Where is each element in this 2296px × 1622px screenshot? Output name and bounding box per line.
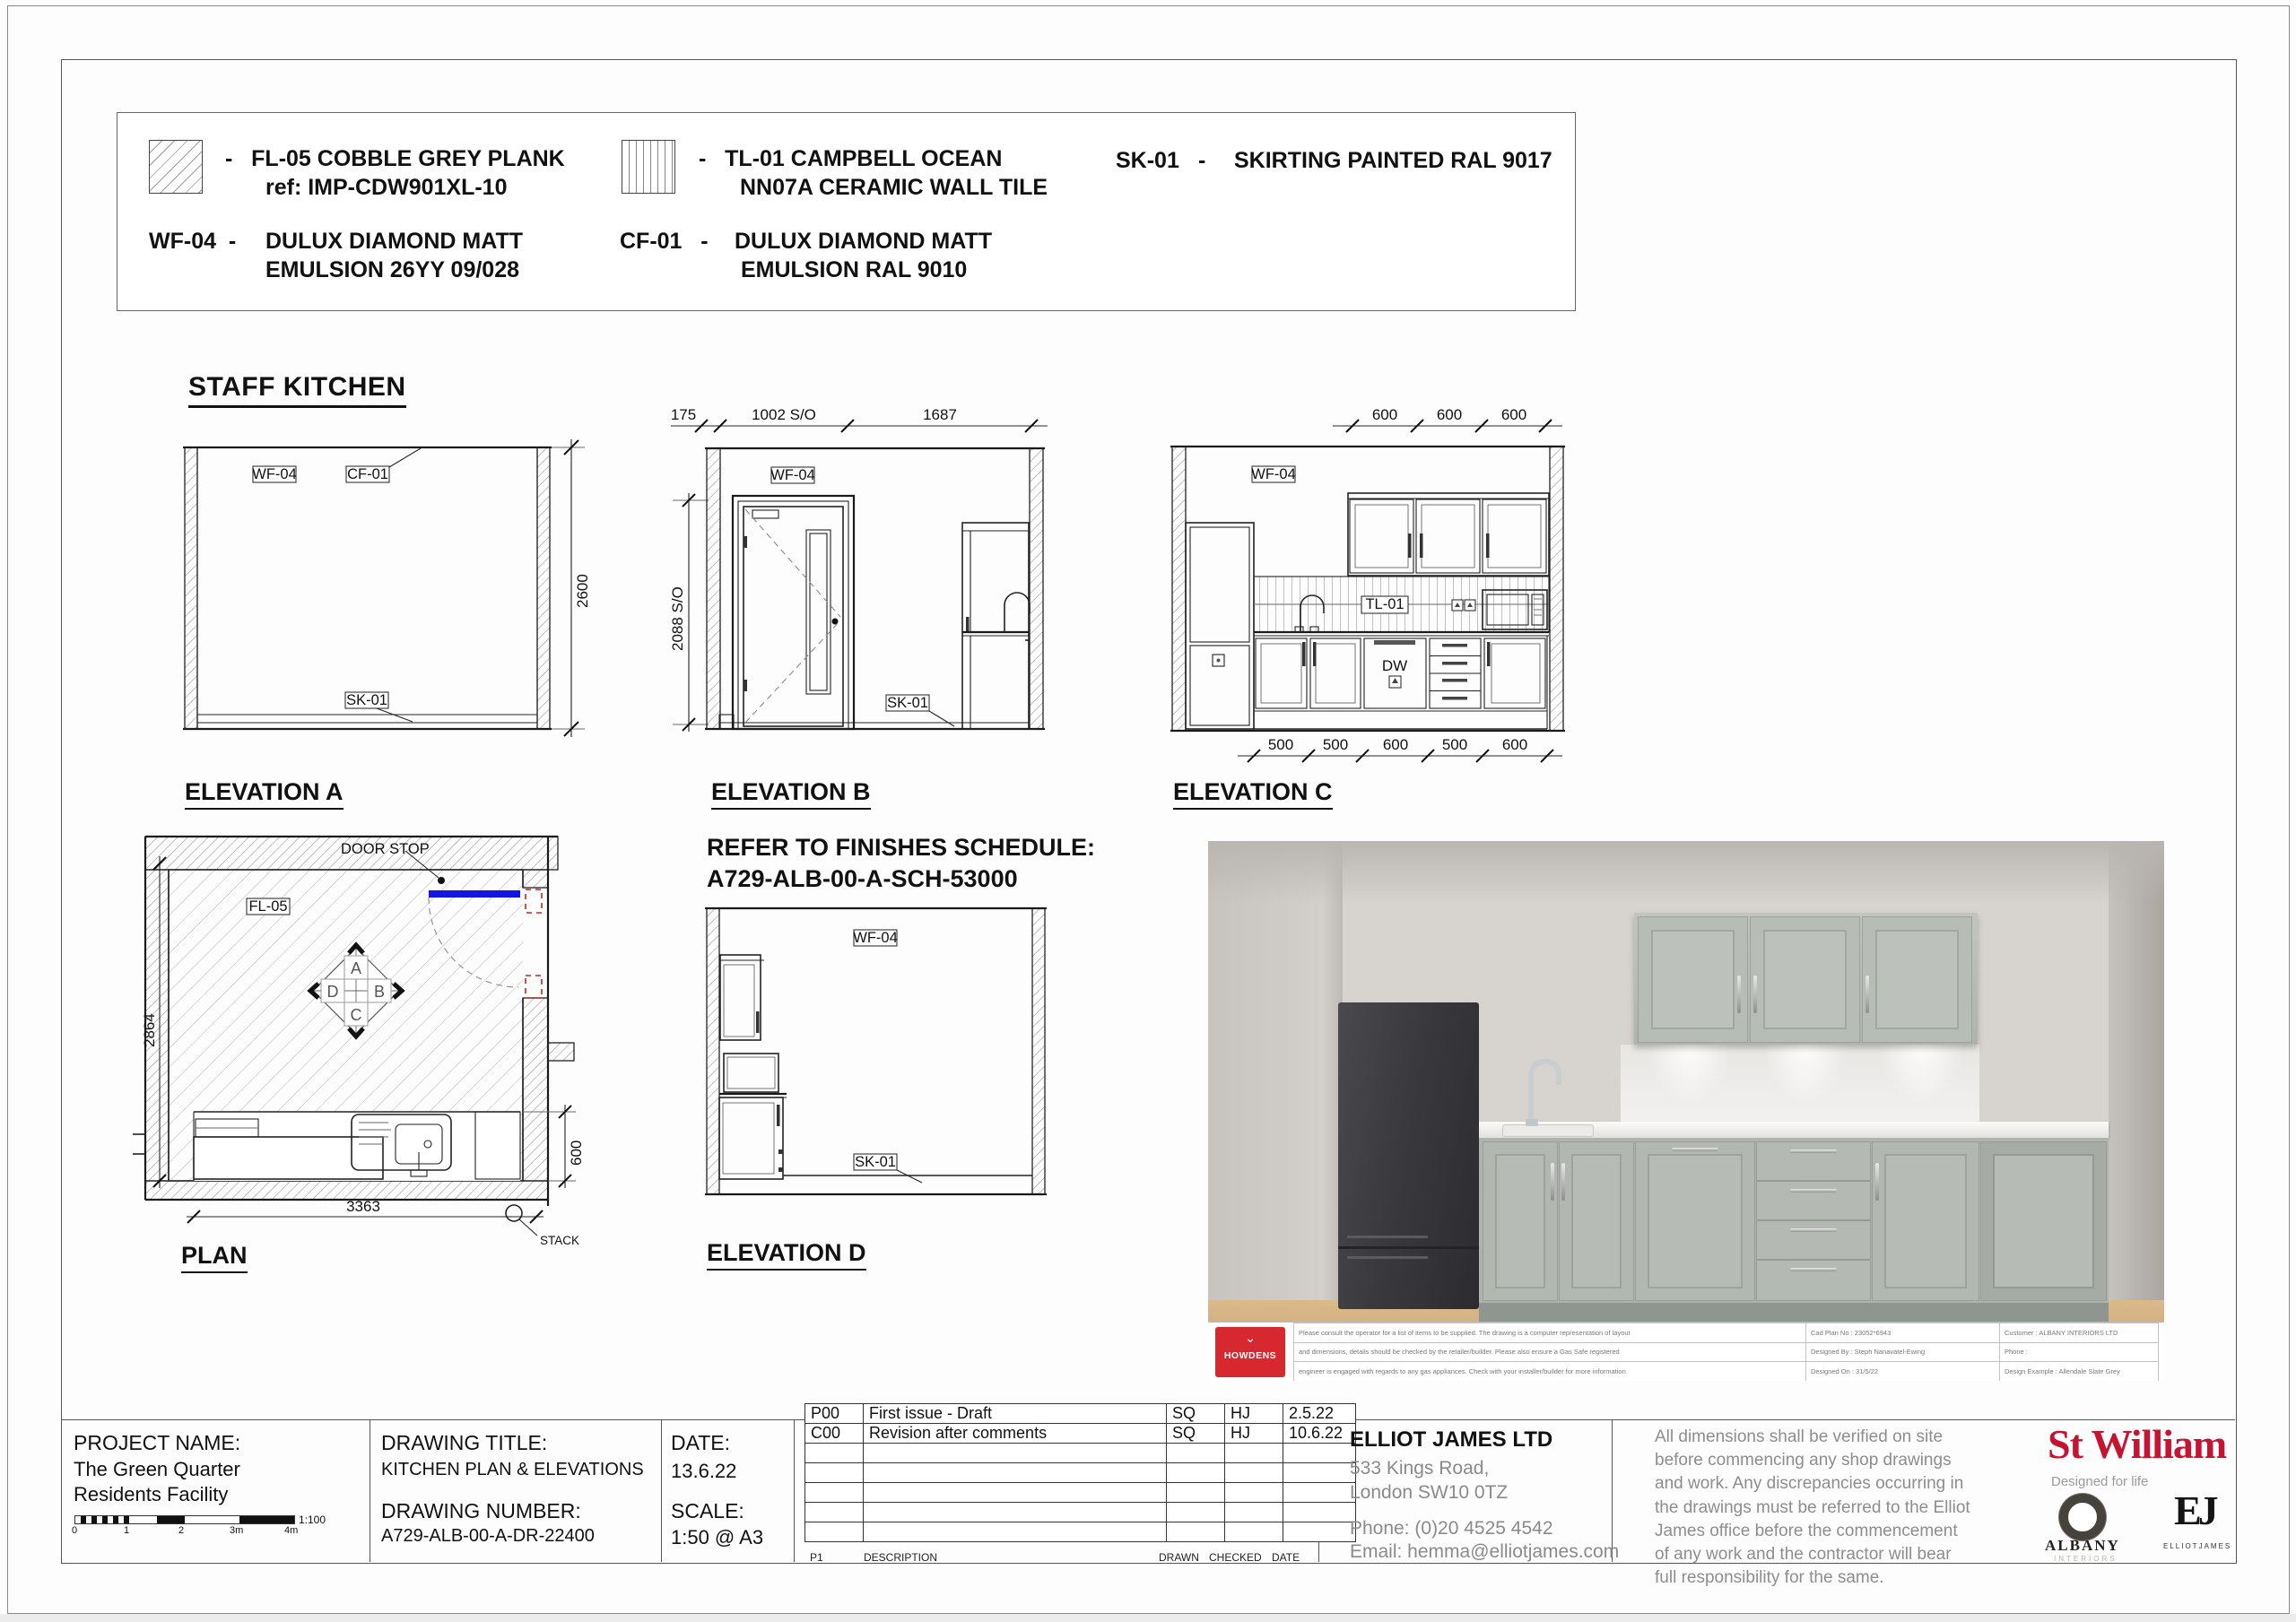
st-william-logo: St William — [2048, 1420, 2226, 1468]
drawing-number-value: A729-ALB-00-A-DR-22400 — [381, 1526, 595, 1547]
revision-row: C00 Revision after comments SQ HJ 10.6.2… — [805, 1424, 1356, 1444]
render-left-wall — [1208, 841, 1343, 1321]
elevC-botdim-3: 600 — [1383, 736, 1408, 753]
strip-r3-mid: Designed On : 31/5/22 — [1806, 1362, 2000, 1381]
strip-r1-right: Customer : ALBANY INTERIORS LTD — [2000, 1323, 2159, 1343]
elliot-james-logo-text: ELLIOTJAMES — [2163, 1542, 2231, 1550]
project-name-line2: Residents Facility — [74, 1483, 228, 1506]
st-william-tagline: Designed for life — [2051, 1474, 2148, 1489]
strip-r3-right: Design Example : Allendale Slate Grey — [2000, 1362, 2159, 1381]
elevC-botdim-1: 500 — [1268, 736, 1293, 753]
strip-r2-mid: Designed By : Steph Nanavatel-Ewing — [1806, 1342, 2000, 1362]
render-right-wall — [2109, 841, 2164, 1321]
rev-footer-drawn: DRAWN — [1159, 1551, 1199, 1564]
drawing-title-value: KITCHEN PLAN & ELEVATIONS — [381, 1460, 644, 1480]
render-sink — [1502, 1124, 1594, 1137]
render-undercabinet-light — [1636, 1045, 1744, 1130]
elevB-wf04-label: WF-04 — [770, 467, 815, 483]
elevA-wf04-label: WF-04 — [252, 466, 297, 482]
company-email: Email: hemma@elliotjames.com — [1350, 1541, 1619, 1563]
plan-marker-c: C — [351, 1006, 362, 1024]
drawing-title-label: DRAWING TITLE: — [381, 1431, 547, 1455]
strip-r1-desc: Please consult the operator for a list o… — [1294, 1323, 1806, 1343]
plan-dim-600: 600 — [568, 1141, 585, 1166]
howdens-bird-icon: ⌄ — [1215, 1327, 1285, 1350]
drawing-sheet: - FL-05 COBBLE GREY PLANK ref: IMP-CDW90… — [0, 0, 2296, 1622]
revision-row: P00 First issue - Draft SQ HJ 2.5.22 — [805, 1404, 1356, 1424]
elevation-c-drawing: 600 600 600 WF-04 TL-01 DW — [1170, 406, 1565, 762]
rev-footer-date: DATE — [1272, 1551, 1300, 1564]
plan-fl05-label: FL-05 — [248, 898, 287, 915]
project-name-line1: The Green Quarter — [74, 1458, 240, 1481]
elevC-dw-label: DW — [1382, 657, 1407, 674]
render-wall-cabinets — [1634, 913, 1978, 1045]
elevC-botdim-2: 500 — [1323, 736, 1348, 753]
elevation-b-drawing: 175 1002 S/O 1687 2088 S/O WF-04 SK-01 — [669, 406, 1048, 732]
render-fridge-freezer — [1338, 1002, 1479, 1309]
elevB-dim-2088: 2088 S/O — [669, 586, 686, 651]
date-label: DATE: — [671, 1431, 730, 1455]
rev-footer-description: DESCRIPTION — [864, 1551, 937, 1564]
elevC-wf04-label: WF-04 — [1251, 466, 1296, 482]
drawing-number-label: DRAWING NUMBER: — [381, 1499, 581, 1523]
plan-stack-label: STACK — [540, 1234, 579, 1247]
albany-logo-text: ALBANY — [2045, 1537, 2120, 1555]
render-tap — [1504, 1045, 1576, 1126]
company-phone: Phone: (0)20 4525 4542 — [1350, 1518, 1553, 1540]
project-name-label: PROJECT NAME: — [74, 1431, 240, 1455]
elevation-d-drawing: WF-04 SK-01 — [705, 908, 1047, 1194]
rev-footer-p1: P1 — [810, 1551, 823, 1564]
disclaimer-text: All dimensions shall be verified on site… — [1655, 1426, 1970, 1591]
company-addr1: 533 Kings Road, — [1350, 1458, 1489, 1479]
elevC-botdim-4: 500 — [1442, 736, 1467, 753]
elevC-topdim-1: 600 — [1372, 406, 1397, 423]
strip-r3-desc: engineer is engaged with regards to any … — [1294, 1362, 1806, 1381]
elevC-tl01-label: TL-01 — [1365, 596, 1404, 612]
scale-bar: 0 1 2 3m 4m 1:100 — [72, 1514, 377, 1540]
plan-drawing: DOOR STOP FL-05 A B C D 2864 3363 600 ST… — [133, 837, 585, 1247]
plan-marker-d: D — [327, 983, 339, 1001]
albany-logo-icon — [2059, 1494, 2106, 1540]
elevB-dim-1002: 1002 S/O — [752, 406, 816, 423]
render-undercabinet-light — [1867, 1045, 1975, 1130]
company-name: ELLIOT JAMES LTD — [1350, 1427, 1552, 1453]
plan-marker-a: A — [351, 959, 361, 977]
revision-table: P00 First issue - Draft SQ HJ 2.5.22 C00… — [804, 1403, 1356, 1542]
elevC-topdim-2: 600 — [1437, 406, 1462, 423]
render-ceiling-shadow — [1208, 841, 2164, 904]
plan-dim-2864: 2864 — [141, 1013, 158, 1047]
strip-r1-mid: Cad Plan No : 23052*6943 — [1806, 1323, 2000, 1343]
elevA-cf01-label: CF-01 — [347, 466, 388, 482]
howdens-logo: ⌄ HOWDENS — [1215, 1327, 1285, 1377]
albany-logo-subtext: INTERIORS — [2054, 1555, 2118, 1563]
elevation-a-drawing: WF-04 CF-01 SK-01 2600 — [183, 439, 591, 737]
company-addr2: London SW10 0TZ — [1350, 1482, 1508, 1504]
plan-door-stop-label: DOOR STOP — [341, 841, 430, 857]
elliot-james-monogram: EJ — [2174, 1487, 2215, 1534]
kitchen-render-image: ⌄ HOWDENS Please consult the operator fo… — [1208, 841, 2164, 1381]
elevB-dim-1687: 1687 — [923, 406, 957, 423]
strip-r2-right: Phone : — [2000, 1342, 2159, 1362]
elevD-wf04-label: WF-04 — [853, 930, 898, 946]
plan-marker-b: B — [374, 983, 385, 1001]
elevA-sk01-label: SK-01 — [346, 692, 387, 708]
render-undercabinet-light — [1752, 1045, 1859, 1130]
elevC-topdim-3: 600 — [1501, 406, 1526, 423]
render-base-cabinets — [1479, 1138, 2109, 1303]
strip-r2-desc: and dimensions, details should be checke… — [1294, 1342, 1806, 1362]
date-value: 13.6.22 — [671, 1460, 736, 1483]
scale-value: 1:50 @ A3 — [671, 1526, 763, 1549]
elevA-dim-2600: 2600 — [574, 574, 591, 608]
plan-dim-3363: 3363 — [346, 1198, 380, 1215]
elevD-sk01-label: SK-01 — [855, 1154, 896, 1170]
render-plinth — [1479, 1303, 2109, 1323]
elevB-sk01-label: SK-01 — [887, 695, 928, 711]
rev-footer-checked: CHECKED — [1209, 1551, 1262, 1564]
elevB-dim-175: 175 — [671, 406, 696, 423]
scale-label: SCALE: — [671, 1499, 744, 1523]
howdens-strip: ⌄ HOWDENS Please consult the operator fo… — [1208, 1322, 2164, 1381]
elevC-botdim-5: 600 — [1502, 736, 1527, 753]
plan-door-leaf — [429, 890, 520, 898]
